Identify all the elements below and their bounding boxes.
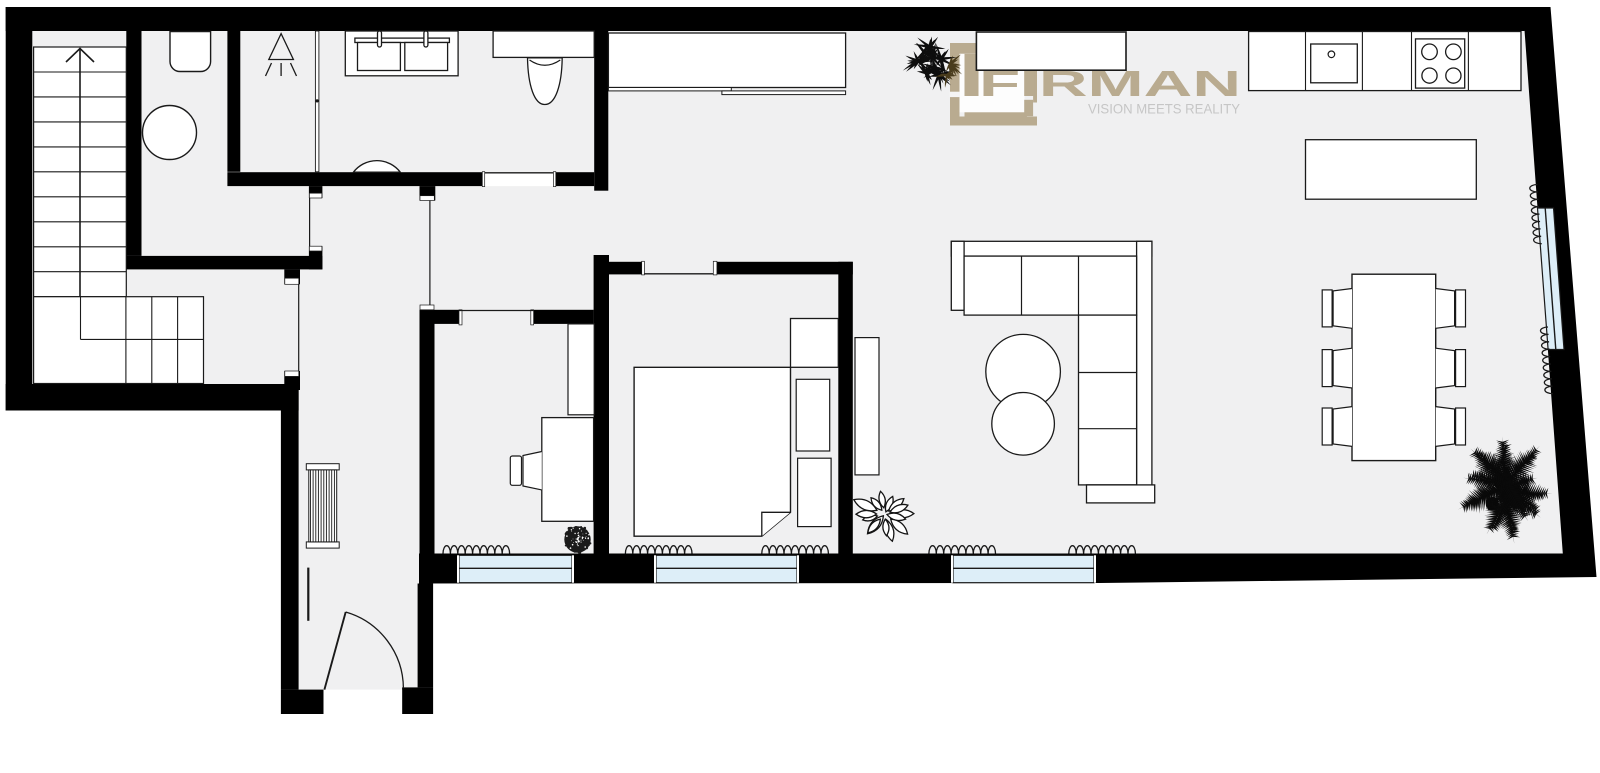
svg-text:VISION MEETS REALITY: VISION MEETS REALITY [1088,102,1240,117]
